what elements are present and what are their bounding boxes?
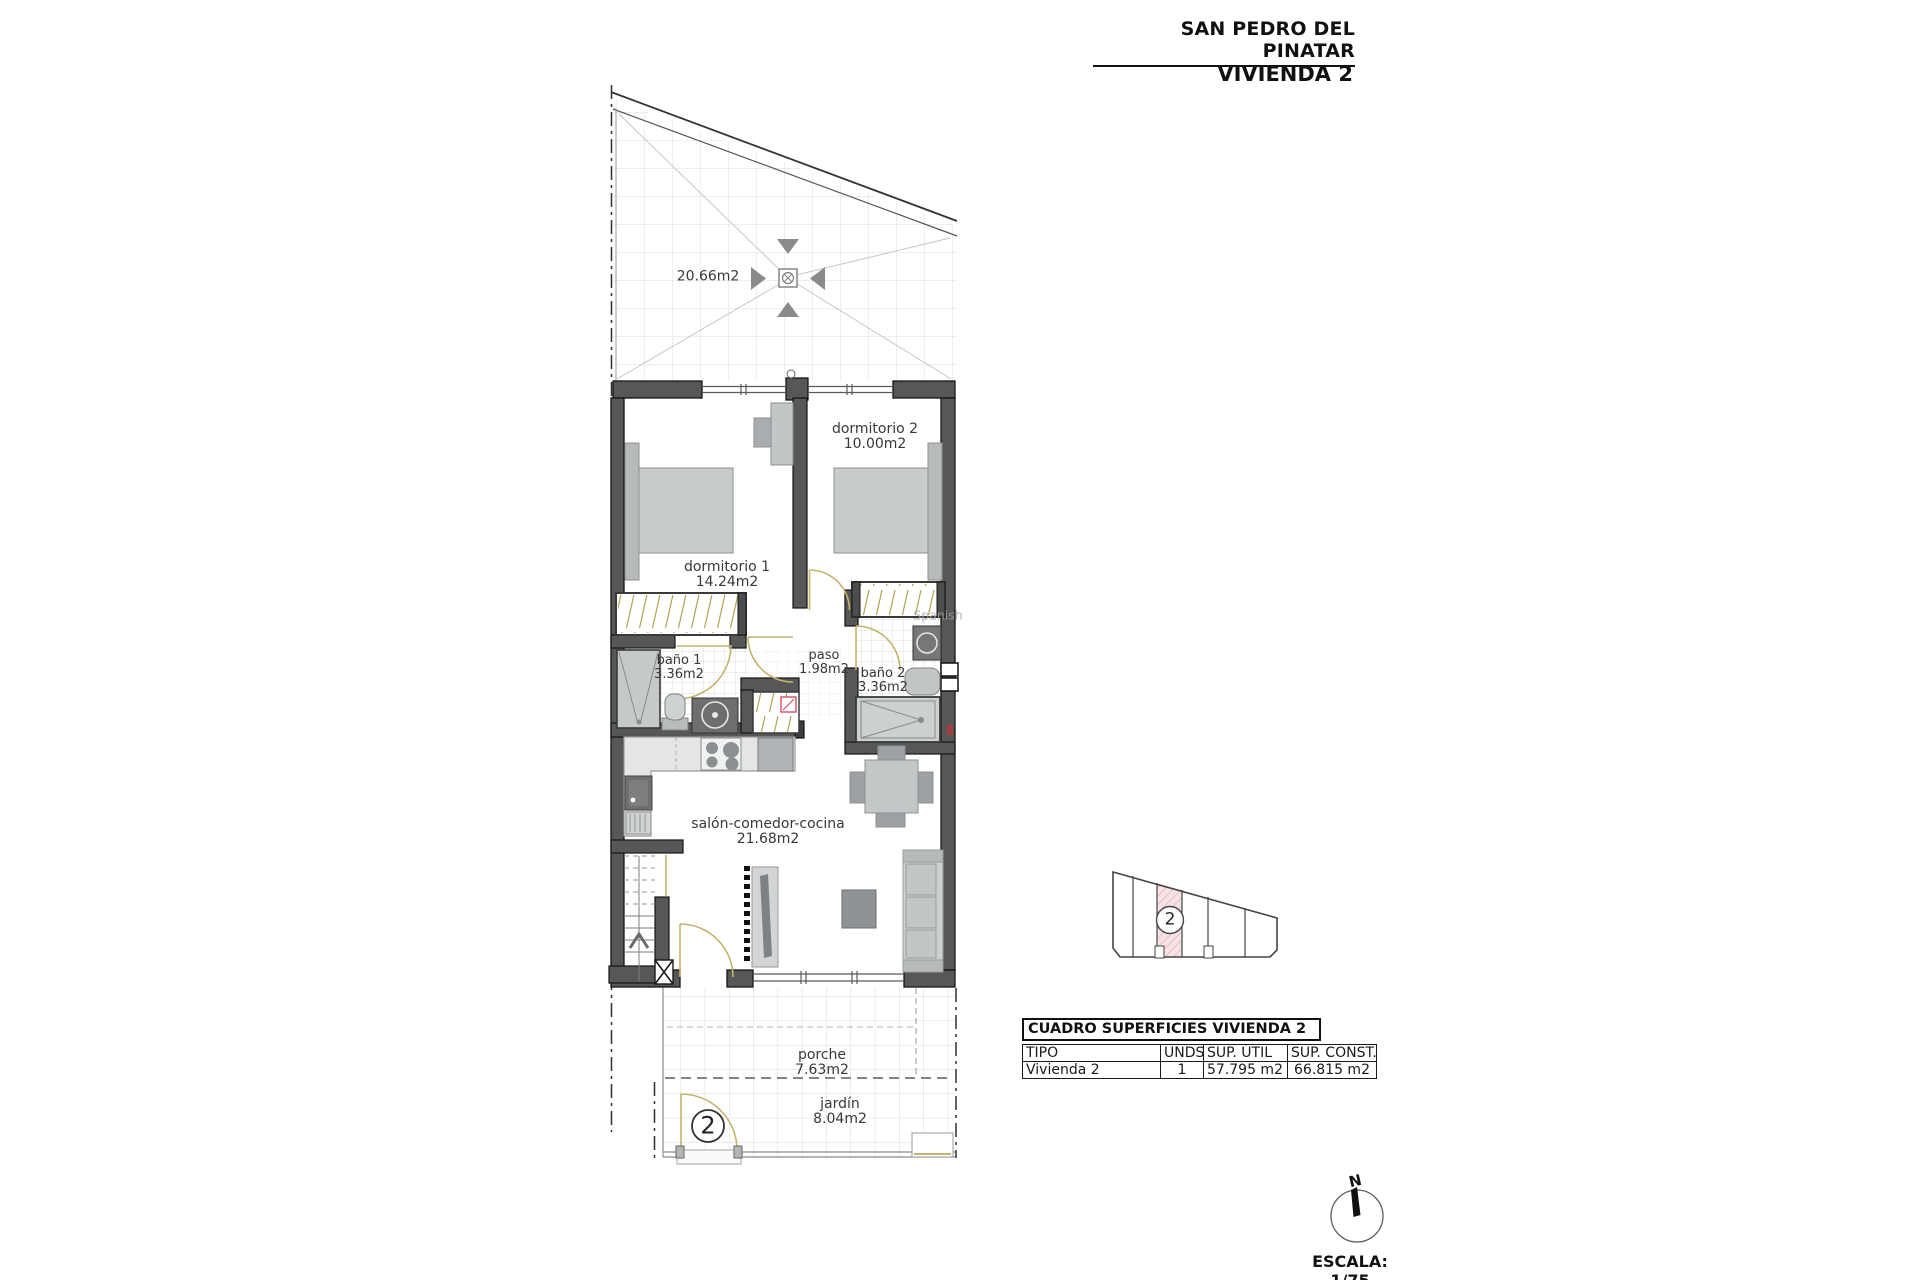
surfaces-table: CUADRO SUPERFICIES VIVIENDA 2 TIPO UNDS.… xyxy=(1022,1018,1376,1079)
col-sup-util: SUP. ÚTIL xyxy=(1204,1045,1288,1062)
surfaces-table-title: CUADRO SUPERFICIES VIVIENDA 2 xyxy=(1022,1018,1321,1041)
surfaces-table-data-row: Vivienda 2 1 57.795 m2 66.815 m2 xyxy=(1023,1062,1377,1079)
room-label-porche: porche 7.63m2 xyxy=(795,1048,849,1078)
plan-sheet: SAN PEDRO DEL PINATAR VIVIENDA 2 20.66m2… xyxy=(0,0,1920,1280)
storage-closet xyxy=(753,692,799,733)
room-label-bano1: baño 1 3.36m2 xyxy=(654,654,704,682)
room-label-salon: salón-comedor-cocina 21.68m2 xyxy=(691,817,844,847)
cell-sup-util: 57.795 m2 xyxy=(1204,1062,1288,1079)
site-key-door-notch xyxy=(1155,946,1164,958)
compass-needle xyxy=(1351,1187,1361,1217)
unit-title: VIVIENDA 2 xyxy=(1150,62,1353,86)
col-unds: UNDS. xyxy=(1161,1045,1204,1062)
entrance-marker-number: 2 xyxy=(700,1111,715,1139)
room-label-dormitorio2: dormitorio 2 10.00m2 xyxy=(832,422,918,452)
cell-sup-const: 66.815 m2 xyxy=(1288,1062,1377,1079)
bed-dorm2 xyxy=(834,443,942,580)
room-label-paso: paso 1.98m2 xyxy=(799,649,849,677)
sofa xyxy=(903,850,943,972)
room-label-bano2: baño 2 3.36m2 xyxy=(858,667,908,695)
location-title: SAN PEDRO DEL PINATAR xyxy=(1093,18,1355,67)
sink-bath2 xyxy=(905,668,940,695)
watermark: Spanish xyxy=(913,608,962,623)
bathtub-bath2 xyxy=(856,697,940,742)
col-tipo: TIPO xyxy=(1023,1045,1161,1062)
floor-plan-drawing xyxy=(0,0,1920,1280)
surfaces-table-grid: TIPO UNDS. SUP. ÚTIL SUP. CONST. Viviend… xyxy=(1022,1044,1377,1079)
wardrobe-dorm1 xyxy=(616,593,746,635)
room-label-jardin: jardín 8.04m2 xyxy=(813,1097,867,1127)
coffee-table xyxy=(842,890,876,928)
room-label-roof-terrace: 20.66m2 xyxy=(677,269,740,284)
compass xyxy=(1331,1187,1383,1242)
cell-unds: 1 xyxy=(1161,1062,1204,1079)
washer-bath2 xyxy=(913,626,941,660)
roof-terrace xyxy=(611,92,957,381)
tv-console xyxy=(744,866,778,967)
facade-vent xyxy=(787,370,795,378)
cell-tipo: Vivienda 2 xyxy=(1023,1062,1161,1079)
room-label-dormitorio1: dormitorio 1 14.24m2 xyxy=(684,560,770,590)
dining-set xyxy=(850,746,933,827)
scale-label: ESCALA: 1/75 xyxy=(1300,1252,1400,1280)
roof-drain xyxy=(779,269,797,287)
gate-threshold xyxy=(677,1150,741,1164)
garden-step xyxy=(912,1133,953,1157)
desk xyxy=(754,403,793,465)
toilet-bath1 xyxy=(662,694,688,730)
washer-bath1 xyxy=(692,698,738,733)
col-sup-const: SUP. CONST. xyxy=(1288,1045,1377,1062)
surfaces-table-header-row: TIPO UNDS. SUP. ÚTIL SUP. CONST. xyxy=(1023,1045,1377,1062)
wall-junction-marker xyxy=(655,960,673,984)
red-survey-mark xyxy=(947,725,953,735)
site-key-door-notch xyxy=(1204,946,1213,958)
site-key xyxy=(1113,872,1277,958)
site-key-unit-number: 2 xyxy=(1165,910,1176,930)
